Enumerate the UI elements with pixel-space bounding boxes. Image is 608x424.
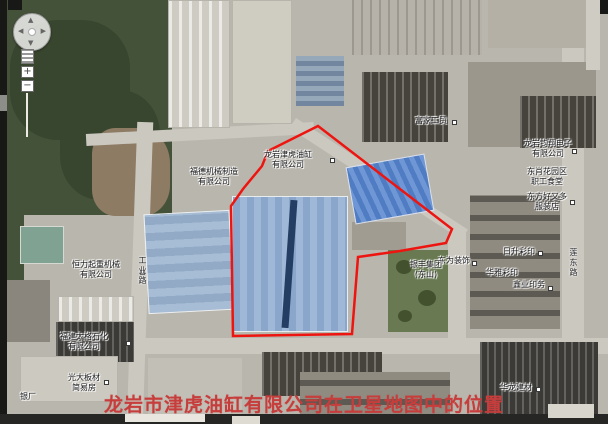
poi-marker-icon	[536, 387, 541, 392]
pan-control[interactable]: ▲ ▼ ◀ ▶	[13, 13, 51, 51]
building	[362, 72, 448, 142]
road-label: 莲东路	[568, 248, 579, 278]
map-label: 福德机械制造 有限公司	[190, 167, 238, 186]
poi-marker-icon	[548, 286, 553, 291]
scan-artifact	[0, 95, 7, 111]
map-label: 龙岩钧翔电子 有限公司	[524, 139, 572, 158]
building	[232, 0, 292, 124]
building-blue-west	[143, 210, 234, 314]
poi-marker-icon	[538, 251, 543, 256]
map-label: 东为装饰	[438, 256, 470, 266]
pan-up-icon[interactable]: ▲	[28, 17, 33, 24]
map-label: 日升彩印	[503, 247, 535, 257]
poi-marker-icon	[452, 120, 457, 125]
building	[0, 280, 50, 342]
satellite-map-canvas[interactable]: 福德机械制造 有限公司 龙岩津虎油缸 有限公司 富家工贸 龙岩钧翔电子 有限公司…	[0, 0, 608, 424]
map-label: 银丰集团 (东山)	[410, 260, 442, 279]
map-caption: 龙岩市津虎油缸有限公司在卫星地图中的位置	[104, 390, 504, 417]
map-label: 东方好又多 服装店	[527, 192, 567, 211]
building	[168, 0, 230, 128]
poi-marker-icon	[104, 380, 109, 385]
pan-right-icon[interactable]: ▶	[41, 28, 46, 35]
scan-artifact	[232, 416, 260, 424]
pan-center-dot[interactable]	[28, 28, 36, 36]
map-label: 东肖花园区 职工食堂	[527, 167, 567, 186]
building	[352, 222, 406, 250]
poi-marker-icon	[330, 158, 335, 163]
map-label: 鑫业印务	[513, 280, 545, 290]
poi-marker-icon	[472, 261, 477, 266]
building	[352, 0, 482, 55]
zoom-slider[interactable]	[21, 49, 34, 64]
scan-artifact	[548, 404, 594, 418]
building	[488, 0, 598, 48]
zoom-slider-stem	[26, 93, 28, 137]
pan-down-icon[interactable]: ▼	[28, 40, 33, 47]
scan-border-left	[0, 0, 7, 424]
scan-artifact	[586, 0, 600, 70]
building	[296, 56, 344, 106]
road	[448, 233, 466, 343]
map-label: 银厂	[20, 392, 36, 402]
zoom-out-button[interactable]: −	[21, 80, 34, 92]
map-label: 龙岩津虎油缸 有限公司	[264, 150, 312, 169]
scan-corner-chip	[8, 0, 22, 10]
building	[470, 195, 560, 329]
map-label: 光大板材 简易房	[68, 373, 100, 392]
map-label: 华雅彩印	[486, 268, 518, 278]
map-label: 富家工贸	[415, 116, 447, 126]
pan-left-icon[interactable]: ◀	[18, 28, 23, 35]
map-label: 福建太格石化 有限公司	[60, 332, 108, 351]
building-teal	[20, 226, 64, 264]
road-label: 工业路	[137, 256, 148, 286]
poi-marker-icon	[572, 149, 577, 154]
poi-marker-icon	[126, 341, 131, 346]
poi-marker-icon	[570, 200, 575, 205]
building	[58, 296, 134, 322]
map-label: 华龙建材	[500, 383, 532, 393]
zoom-in-button[interactable]: +	[21, 66, 34, 78]
map-label: 恒力起重机械 有限公司	[72, 260, 120, 279]
